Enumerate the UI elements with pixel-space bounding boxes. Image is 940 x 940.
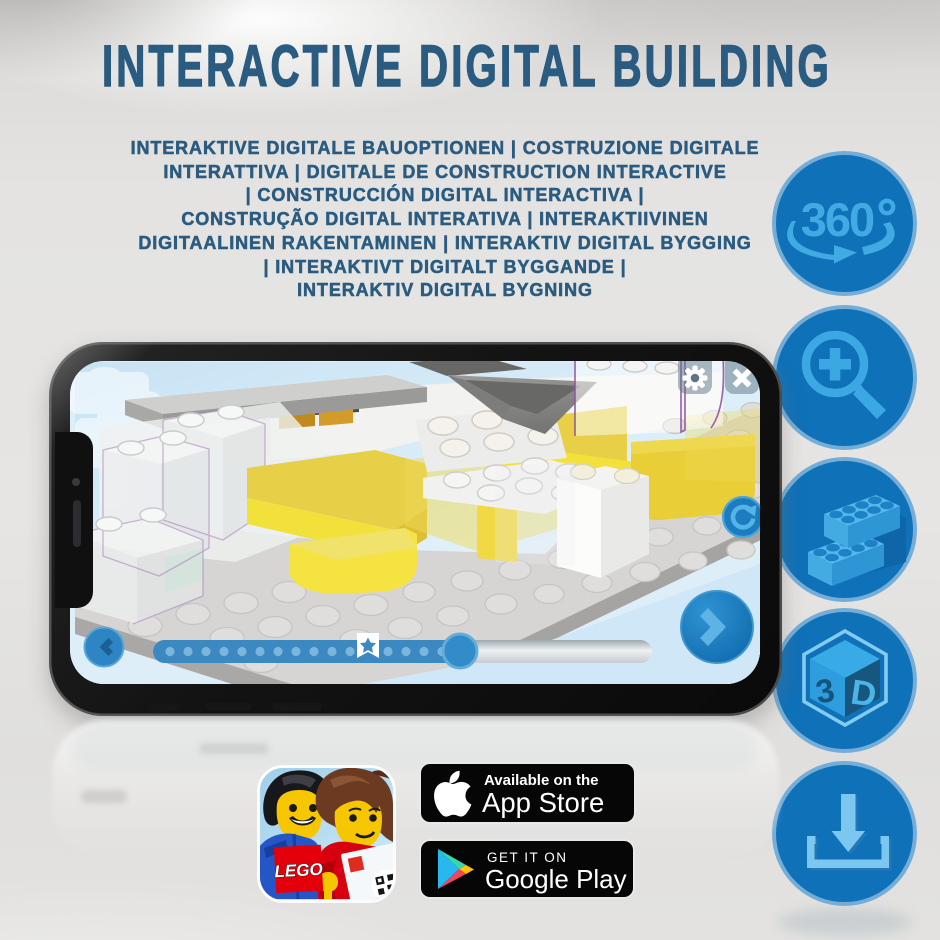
svg-text:GET IT ON: GET IT ON bbox=[487, 850, 568, 865]
svg-text:LEGO: LEGO bbox=[274, 860, 323, 881]
svg-text:D: D bbox=[848, 673, 878, 715]
svg-text:360: 360 bbox=[801, 193, 874, 246]
svg-text:Google Play: Google Play bbox=[485, 864, 627, 894]
svg-text:App Store: App Store bbox=[482, 787, 604, 818]
